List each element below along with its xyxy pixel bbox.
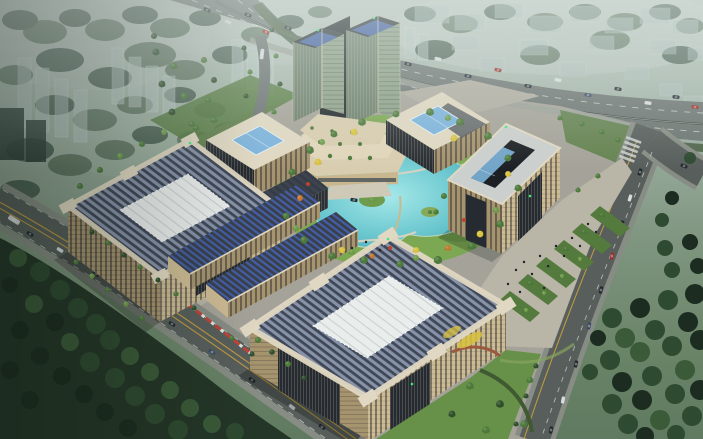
aerial-campus-rendering — [0, 0, 703, 439]
rendering-canvas — [0, 0, 703, 439]
